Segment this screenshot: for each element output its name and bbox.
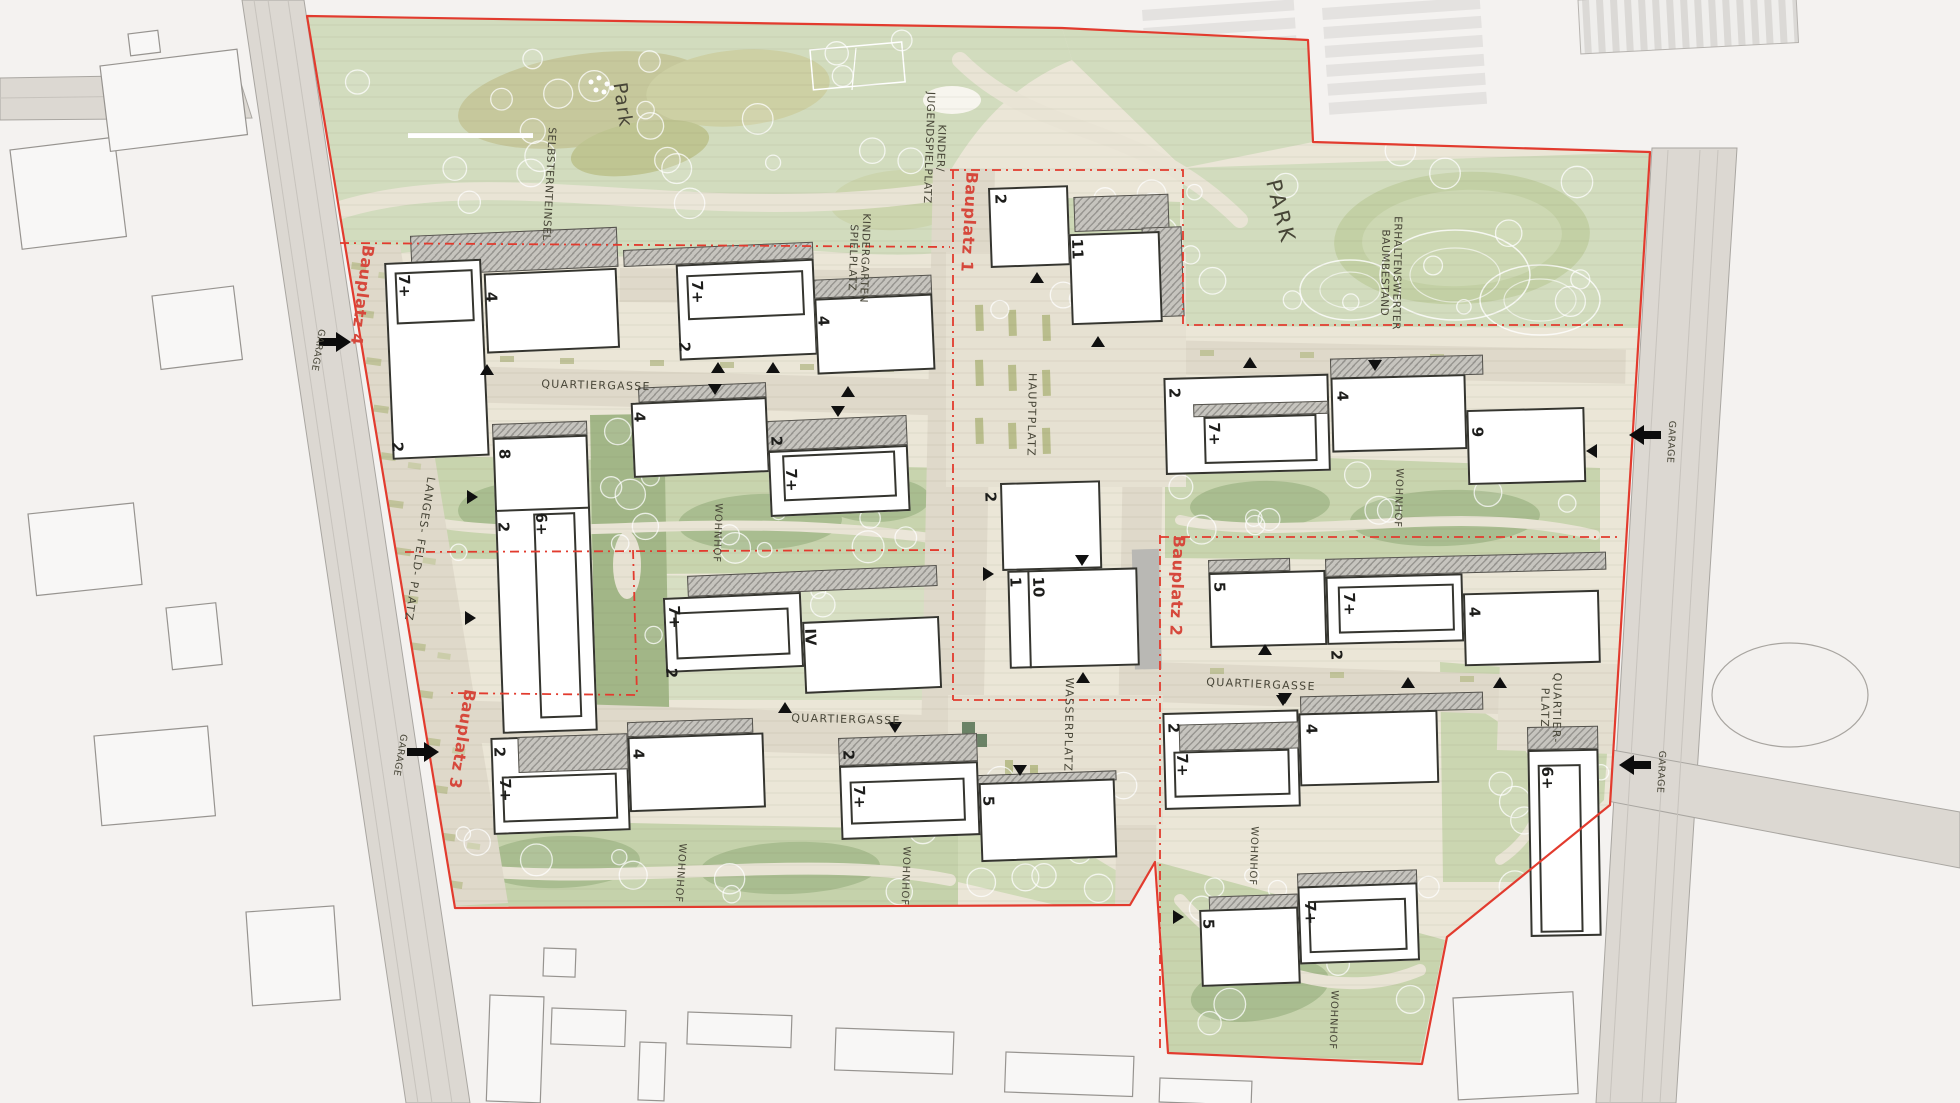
storey-label: 9	[1468, 426, 1485, 437]
street-label: QUARTIERGASSE	[791, 712, 901, 727]
site-plan: Bauplatz 1Bauplatz 2Bauplatz 3Bauplatz 4…	[0, 0, 1960, 1103]
area-label: PARK	[1261, 177, 1300, 247]
street-label: LANGES- FELD- PLATZ	[401, 476, 436, 622]
street-label: QUARTIERGASSE	[1206, 676, 1316, 693]
storey-label: 7+	[395, 274, 413, 298]
storey-label: 4	[1302, 723, 1319, 734]
storey-label: 4	[482, 291, 499, 302]
storey-label: 7+	[688, 280, 706, 304]
storey-label: 2	[991, 193, 1008, 204]
bauplatz-label: Bauplatz 4	[347, 244, 377, 346]
storey-label: 4	[1465, 606, 1482, 617]
wohnhof-label: WOHNHOF	[1246, 826, 1259, 886]
storey-label: 2	[767, 435, 784, 446]
storey-label: 10	[1029, 576, 1047, 597]
street-label: HAUPTPLATZ	[1024, 373, 1038, 457]
wohnhof-label: WOHNHOF	[898, 846, 911, 906]
storey-label: 7+	[1340, 592, 1358, 616]
storey-label: 2	[490, 746, 507, 757]
labels-layer: Bauplatz 1Bauplatz 2Bauplatz 3Bauplatz 4…	[0, 0, 1960, 1103]
storey-label: 7+	[1173, 753, 1191, 777]
street-label: QUARTIERGASSE	[541, 378, 651, 393]
garage-label: GARAGE	[390, 733, 408, 777]
storey-label: 4	[629, 748, 646, 759]
area-label: KINDERGARTEN SPIELPLATZ	[845, 213, 872, 304]
storey-label: 7+	[782, 468, 800, 492]
storey-label: 7+	[850, 785, 868, 809]
storey-label: 5	[1210, 581, 1227, 592]
wohnhof-label: WOHNHOF	[1326, 990, 1339, 1050]
storey-label: 8	[495, 448, 512, 459]
bauplatz-label: Bauplatz 3	[445, 688, 478, 790]
storey-label: 4	[814, 315, 831, 326]
storey-label: 2	[1165, 387, 1182, 398]
storey-label: 2	[839, 749, 856, 760]
storey-label: 2	[675, 341, 692, 352]
wohnhof-label: WOHNHOF	[710, 503, 723, 563]
storey-label: 5	[979, 795, 996, 806]
storey-label: 2	[981, 491, 998, 502]
storey-label: 2	[494, 521, 511, 532]
bauplatz-label: Bauplatz 2	[1166, 535, 1187, 636]
storey-label: 2	[662, 667, 679, 678]
storey-label: 2	[388, 441, 405, 452]
storey-label: 11	[1068, 238, 1086, 259]
storey-label: 7+	[1205, 422, 1223, 446]
area-label: ERHALTENSWERTER BAUMBESTAND	[1377, 216, 1402, 330]
storey-label: 6+	[532, 512, 550, 536]
storey-label: 4	[1333, 390, 1350, 401]
garage-label: GARAGE	[1664, 420, 1677, 463]
storey-label: 7+	[665, 605, 683, 629]
wohnhof-label: WOHNHOF	[672, 843, 687, 903]
storey-label: 2	[1327, 649, 1344, 660]
storey-label: 7+	[1301, 901, 1319, 925]
storey-label: 7+	[496, 778, 514, 802]
storey-label: 6+	[1538, 766, 1556, 790]
wohnhof-label: WOHNHOF	[1391, 468, 1404, 528]
street-label: WASSERPLATZ	[1061, 678, 1075, 773]
storey-label: IV	[801, 628, 818, 646]
area-label: SELBSTERNTEINSEL	[539, 127, 557, 241]
storey-label: 4	[630, 411, 647, 422]
area-label: Park	[608, 81, 635, 129]
garage-label: GARAGE	[1654, 750, 1667, 793]
storey-label: 2	[1164, 722, 1181, 733]
street-label: QUARTIER- PLATZ	[1537, 672, 1563, 743]
storey-label: 5	[1199, 918, 1216, 929]
storey-label: 1	[1006, 576, 1023, 587]
area-label: KINDER/ JUGENDSPIELPLATZ	[920, 92, 947, 205]
garage-label: GARAGE	[308, 328, 326, 372]
bauplatz-label: Bauplatz 1	[957, 171, 980, 273]
